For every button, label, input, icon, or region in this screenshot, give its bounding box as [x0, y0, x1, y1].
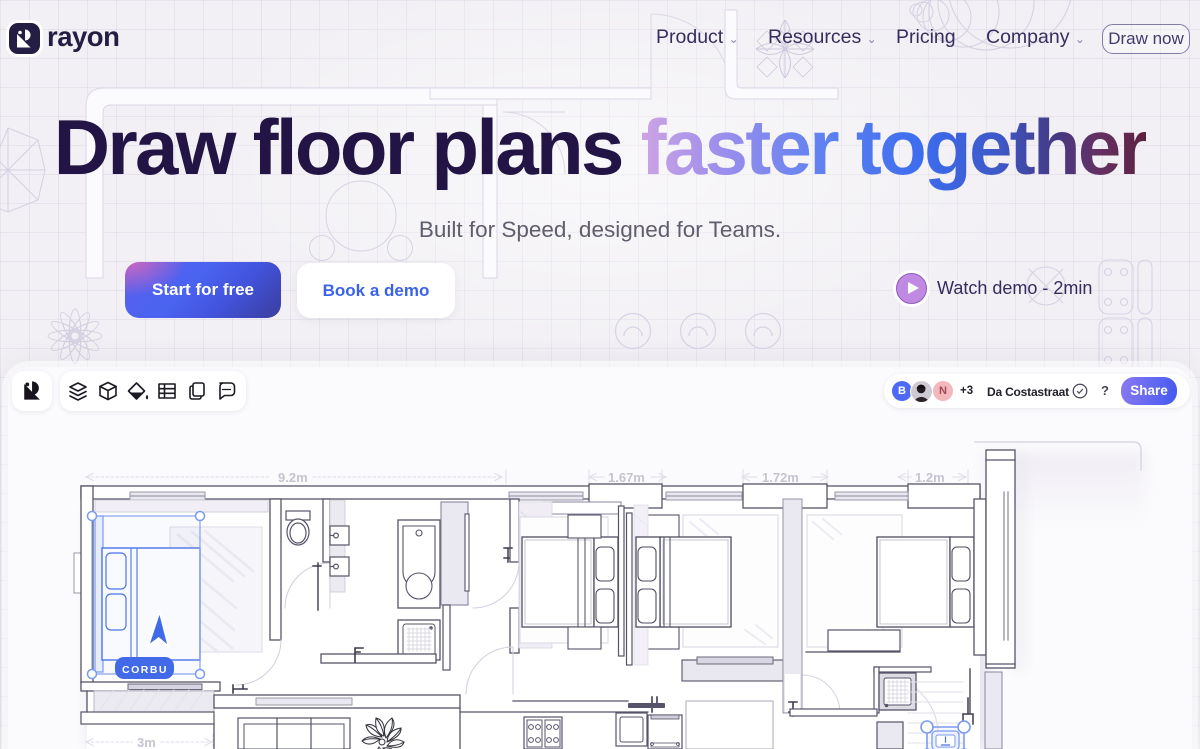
svg-text:1.2m: 1.2m — [915, 470, 945, 485]
svg-text:1.67m: 1.67m — [608, 470, 645, 485]
svg-text:1.72m: 1.72m — [762, 470, 799, 485]
svg-text:3m: 3m — [137, 735, 156, 749]
svg-text:CORBU: CORBU — [122, 664, 168, 676]
svg-text:9.2m: 9.2m — [278, 470, 308, 485]
